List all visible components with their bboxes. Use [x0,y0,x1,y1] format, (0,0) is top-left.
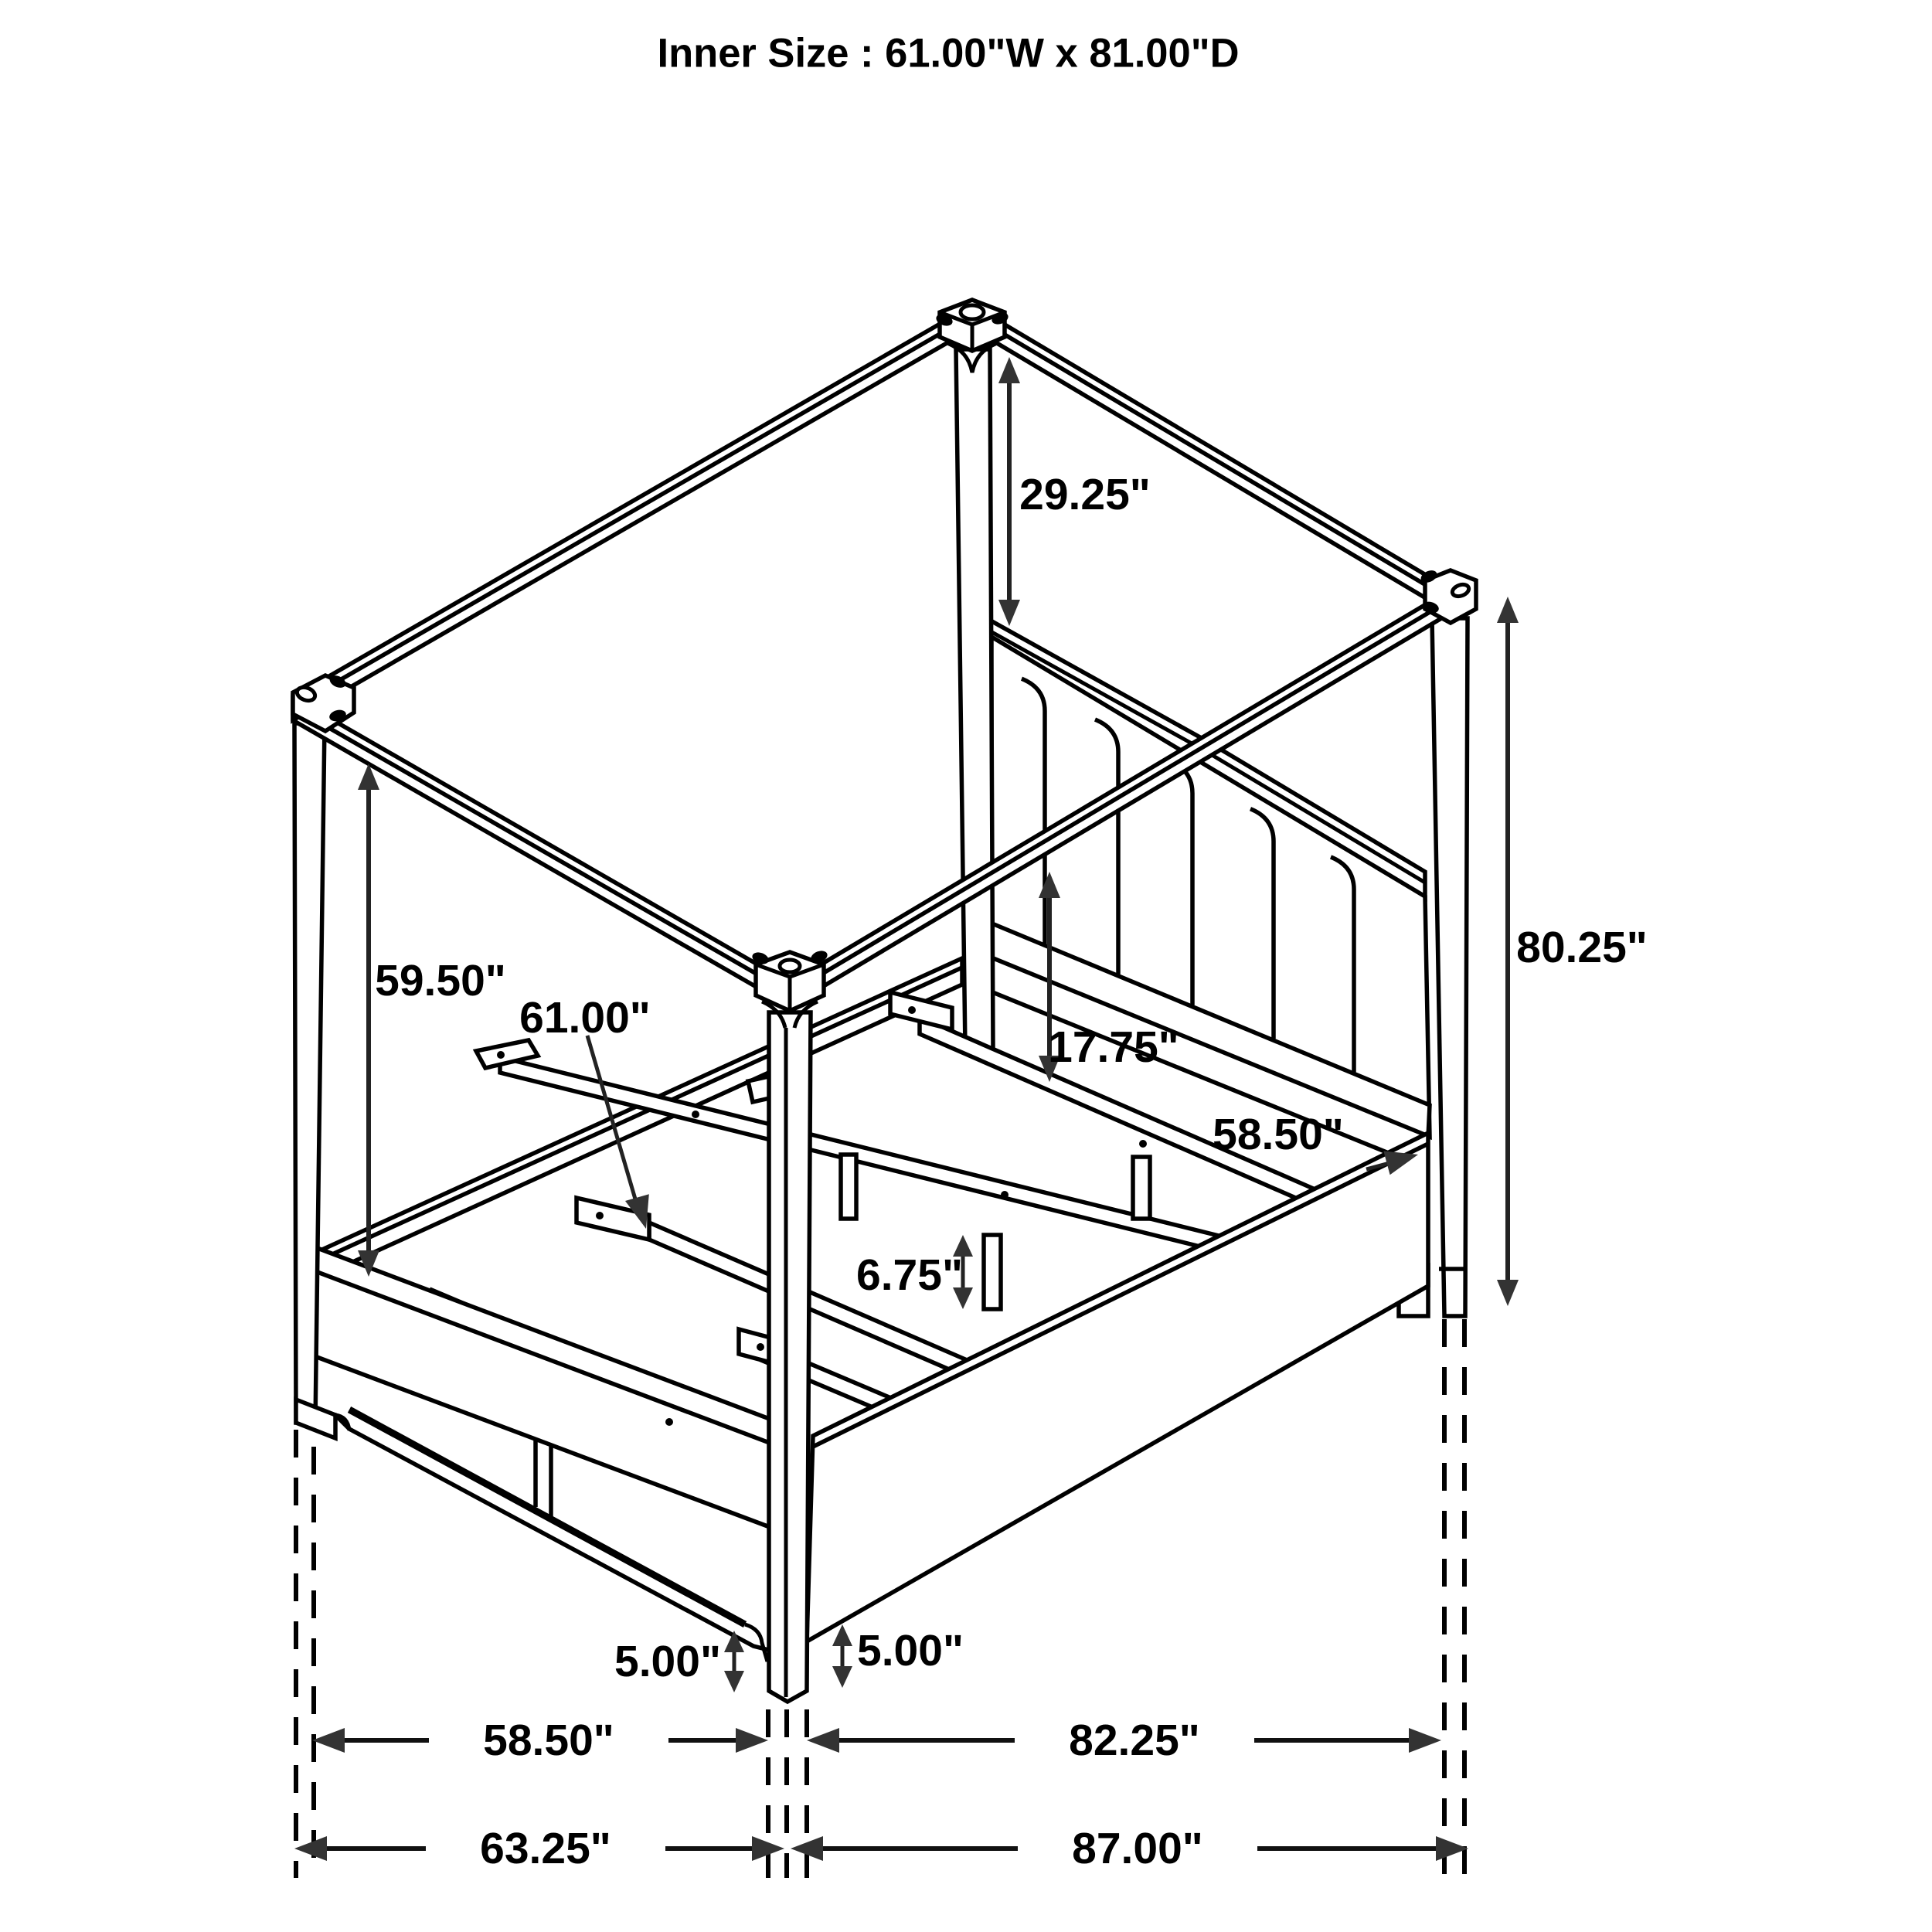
svg-text:5.00": 5.00" [614,1637,721,1686]
svg-text:Inner Size : 61.00"W x 81.00"D: Inner Size : 61.00"W x 81.00"D [657,31,1239,77]
svg-text:17.75": 17.75" [1048,1022,1179,1072]
svg-text:58.50": 58.50" [1213,1110,1344,1159]
svg-text:5.00": 5.00" [857,1626,964,1675]
svg-text:63.25": 63.25" [480,1824,611,1873]
svg-text:80.25": 80.25" [1516,923,1648,972]
svg-text:6.75": 6.75" [856,1250,963,1300]
svg-text:82.25": 82.25" [1069,1716,1200,1765]
svg-text:59.50": 59.50" [375,956,506,1005]
svg-text:61.00": 61.00" [519,993,651,1043]
svg-text:87.00": 87.00" [1072,1824,1203,1873]
svg-text:29.25": 29.25" [1019,470,1151,519]
svg-text:58.50": 58.50" [483,1716,614,1765]
